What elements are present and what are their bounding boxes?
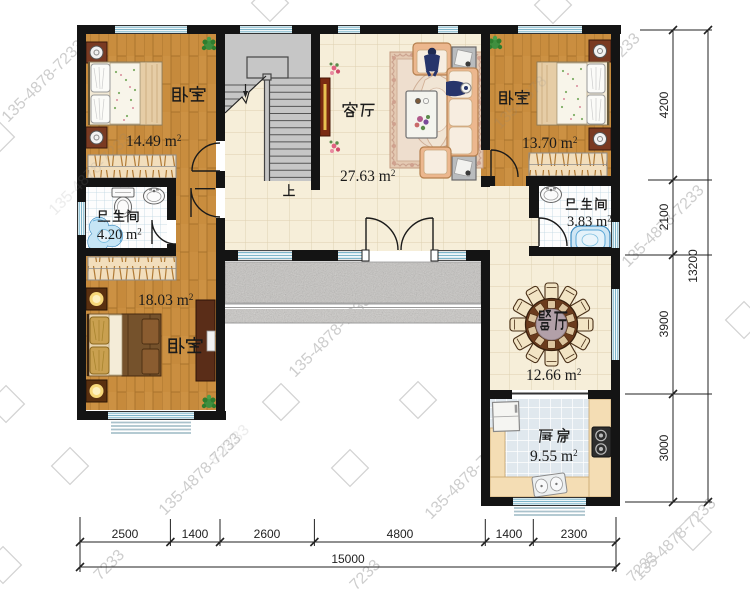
svg-text:2300: 2300 — [561, 527, 588, 541]
svg-text:3000: 3000 — [657, 434, 671, 461]
svg-text:2500: 2500 — [112, 527, 139, 541]
svg-text:2600: 2600 — [254, 527, 281, 541]
svg-text:1400: 1400 — [496, 527, 523, 541]
svg-text:3.83 m2: 3.83 m2 — [567, 214, 612, 231]
svg-text:14.49 m2: 14.49 m2 — [126, 133, 181, 150]
svg-text:12.66 m2: 12.66 m2 — [526, 367, 581, 384]
svg-text:18.03 m2: 18.03 m2 — [138, 292, 193, 309]
svg-text:4800: 4800 — [387, 527, 414, 541]
svg-text:27.63 m2: 27.63 m2 — [340, 168, 395, 185]
svg-text:4200: 4200 — [657, 91, 671, 118]
svg-text:9.55 m2: 9.55 m2 — [530, 448, 578, 465]
svg-text:2100: 2100 — [657, 203, 671, 230]
svg-text:15000: 15000 — [331, 552, 365, 566]
svg-text:13.70 m2: 13.70 m2 — [522, 135, 577, 152]
svg-text:1400: 1400 — [182, 527, 209, 541]
svg-text:13200: 13200 — [686, 249, 700, 283]
svg-text:4.20 m2: 4.20 m2 — [97, 227, 142, 244]
svg-text:3900: 3900 — [657, 310, 671, 337]
